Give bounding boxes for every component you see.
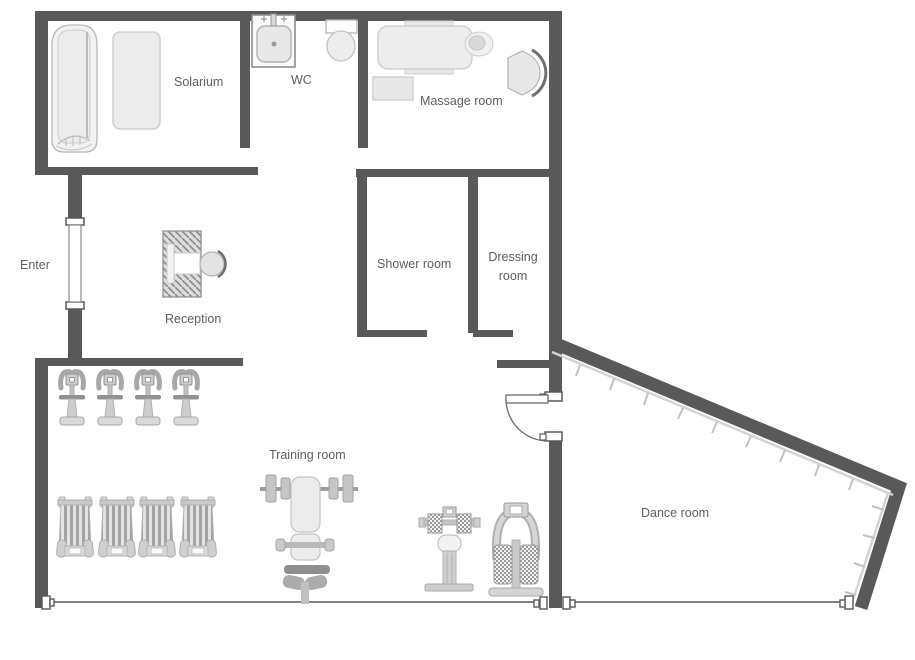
chair-icon: [508, 50, 546, 96]
room-label-massage: Massage room: [420, 94, 503, 108]
exercise-bike-icon: [59, 372, 85, 425]
chair-icon: [200, 251, 226, 277]
room-label-shower: Shower room: [377, 257, 451, 271]
weight-machine-icon: [419, 507, 480, 591]
treadmill-icon: [138, 497, 176, 557]
toilet-icon: [326, 20, 357, 61]
exercise-bike-icon: [135, 372, 161, 425]
massage-table-icon: [378, 21, 493, 74]
wall-segment: [68, 305, 82, 360]
exercise-bike-icon: [173, 372, 199, 425]
side-table-icon: [373, 77, 413, 100]
wall-segment: [35, 11, 562, 21]
wall-segment: [35, 358, 48, 608]
room-label-enter: Enter: [20, 258, 50, 272]
room-label-dressing: Dressing room: [477, 248, 549, 286]
wall-segment: [549, 11, 562, 392]
room-label-reception: Reception: [165, 312, 221, 326]
solarium-bed-icon: [52, 25, 97, 152]
bench-press-icon: [260, 475, 358, 604]
weight-machine-icon: [489, 503, 543, 596]
solarium-mat-icon: [113, 32, 160, 129]
wall-segment: [35, 358, 243, 366]
door-icon: [506, 392, 562, 441]
entrance-door-icon: [66, 218, 84, 309]
wall-segment: [549, 441, 562, 608]
treadmill-icon: [98, 497, 136, 557]
wall-segment: [35, 167, 258, 175]
wall-segment: [473, 330, 513, 337]
wall-segment: [240, 11, 250, 148]
wall-segment: [358, 11, 368, 148]
wall-segment: [356, 169, 562, 177]
mirror-wall-ticks-icon: [576, 365, 884, 595]
wall-segment: [357, 330, 427, 337]
room-label-wc: WC: [291, 73, 312, 87]
treadmill-icon: [179, 497, 217, 557]
treadmill-icon: [56, 497, 94, 557]
floor-plan-canvas: Solarium WC Massage room Enter Reception…: [0, 0, 915, 660]
wall-segment: [497, 360, 549, 368]
wall-segment: [68, 174, 82, 223]
sink-icon: [252, 14, 295, 67]
room-label-training: Training room: [269, 448, 346, 462]
wall-segment: [357, 177, 367, 333]
reception-desk-icon: [163, 231, 201, 297]
wall-segment: [35, 11, 48, 174]
dance-room-walls: [552, 343, 899, 608]
room-label-dance: Dance room: [641, 506, 709, 520]
room-label-solarium: Solarium: [174, 75, 223, 89]
exercise-bike-icon: [97, 372, 123, 425]
